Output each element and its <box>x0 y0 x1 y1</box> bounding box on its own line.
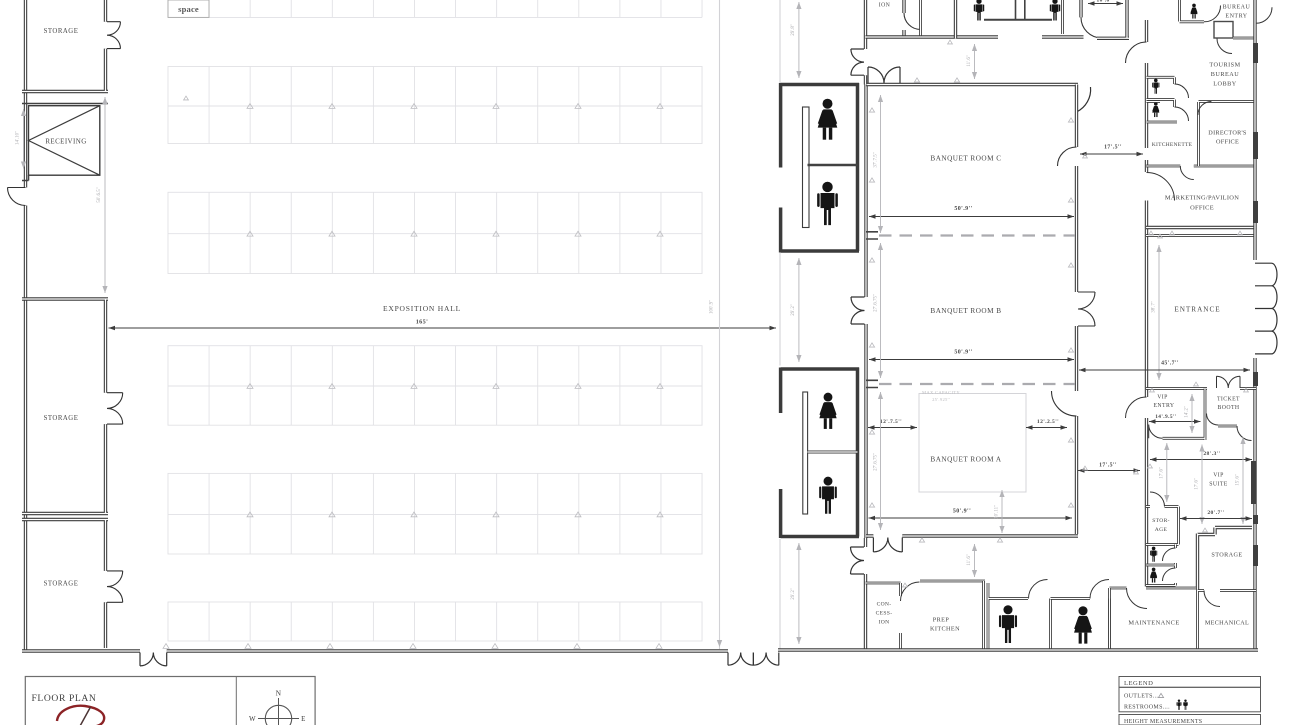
svg-text:OFFICE: OFFICE <box>1216 139 1239 146</box>
svg-text:28'.3'': 28'.3'' <box>1203 451 1220 457</box>
svg-text:50'.9'': 50'.9'' <box>953 509 971 515</box>
svg-text:STORAGE: STORAGE <box>44 28 79 35</box>
svg-text:STORAGE: STORAGE <box>44 415 79 422</box>
svg-text:E: E <box>301 715 306 723</box>
svg-text:STOR-: STOR- <box>1152 518 1170 524</box>
svg-text:OFFICE: OFFICE <box>1190 205 1214 212</box>
svg-text:W: W <box>249 715 256 723</box>
svg-text:PREP: PREP <box>933 617 950 624</box>
svg-text:MAX CAPACITY: MAX CAPACITY <box>922 390 960 395</box>
svg-text:KITCHEN: KITCHEN <box>930 626 960 633</box>
svg-text:165': 165' <box>416 319 429 326</box>
svg-text:EXPOSITION HALL: EXPOSITION HALL <box>383 304 461 313</box>
svg-text:AGE: AGE <box>1155 527 1168 533</box>
svg-text:STORAGE: STORAGE <box>1211 552 1242 559</box>
svg-text:BUREAU: BUREAU <box>1223 5 1251 11</box>
svg-text:45'.7'': 45'.7'' <box>1161 361 1179 367</box>
svg-text:17'.5'': 17'.5'' <box>1099 463 1117 469</box>
svg-text:ENTRY: ENTRY <box>1153 403 1174 409</box>
svg-text:17'.6'': 17'.6'' <box>1159 467 1164 479</box>
svg-text:38'.7'': 38'.7'' <box>1152 301 1157 313</box>
svg-text:FLOOR PLAN: FLOOR PLAN <box>32 693 97 704</box>
svg-text:ION: ION <box>879 620 890 626</box>
svg-text:CESS-: CESS- <box>876 611 893 617</box>
svg-text:100'.9'': 100'.9'' <box>710 300 715 314</box>
svg-text:STORAGE: STORAGE <box>44 581 79 588</box>
svg-text:BANQUET ROOM B: BANQUET ROOM B <box>930 307 1001 315</box>
svg-text:20'.7'': 20'.7'' <box>1207 510 1224 516</box>
svg-text:50'.6.5'': 50'.6.5'' <box>97 187 102 202</box>
svg-text:29'.2'': 29'.2'' <box>791 304 796 316</box>
svg-text:LEGEND: LEGEND <box>1124 680 1153 687</box>
svg-text:KITCHENETTE: KITCHENETTE <box>1152 142 1193 148</box>
svg-text:LOBBY: LOBBY <box>1213 81 1237 88</box>
svg-text:29'.2'': 29'.2'' <box>791 588 796 600</box>
svg-text:HEIGHT MEASUREMENTS: HEIGHT MEASUREMENTS <box>1124 719 1202 725</box>
svg-text:BANQUET ROOM C: BANQUET ROOM C <box>930 155 1001 163</box>
svg-text:50'.9'': 50'.9'' <box>954 350 972 356</box>
svg-text:BUREAU: BUREAU <box>1211 71 1239 78</box>
svg-text:OUTLETS....: OUTLETS.... <box>1124 694 1160 700</box>
svg-text:50'.9'': 50'.9'' <box>954 206 972 212</box>
svg-text:BANQUET ROOM A: BANQUET ROOM A <box>930 456 1001 464</box>
svg-text:N: N <box>276 689 282 698</box>
svg-text:BOOTH: BOOTH <box>1218 405 1240 411</box>
svg-text:SUITE: SUITE <box>1209 482 1227 488</box>
svg-text:11'.6'': 11'.6'' <box>967 554 972 565</box>
svg-text:15'.6'': 15'.6'' <box>1236 474 1241 486</box>
svg-text:DIRECTOR'S: DIRECTOR'S <box>1208 130 1247 137</box>
svg-text:17'.6'': 17'.6'' <box>1195 478 1200 490</box>
svg-text:14'.2'': 14'.2'' <box>1185 406 1190 418</box>
svg-text:27'.6.75'': 27'.6.75'' <box>874 453 879 471</box>
svg-text:TICKET: TICKET <box>1217 397 1240 403</box>
svg-text:VIP: VIP <box>1213 473 1224 479</box>
svg-text:17'.5'': 17'.5'' <box>1104 145 1122 151</box>
svg-text:RESTROOMS....: RESTROOMS.... <box>1124 705 1170 711</box>
svg-text:29'.8'': 29'.8'' <box>791 24 796 36</box>
svg-text:25'.925'': 25'.925'' <box>932 397 950 402</box>
svg-text:TOURISM: TOURISM <box>1209 62 1240 69</box>
svg-text:CON-: CON- <box>877 602 892 608</box>
svg-text:10'.0'': 10'.0'' <box>1096 0 1113 4</box>
svg-text:10'.11'': 10'.11'' <box>995 505 1000 519</box>
svg-text:ENTRANCE: ENTRANCE <box>1174 306 1220 314</box>
svg-text:VIP: VIP <box>1157 395 1168 401</box>
svg-text:space: space <box>178 4 199 14</box>
svg-text:MARKETING/PAVILION: MARKETING/PAVILION <box>1165 195 1239 202</box>
svg-text:12'.2.5'': 12'.2.5'' <box>1037 419 1059 425</box>
svg-text:11'.6'': 11'.6'' <box>967 55 972 66</box>
svg-text:12'.7.5'': 12'.7.5'' <box>880 419 902 425</box>
svg-text:ENTRY: ENTRY <box>1225 14 1247 20</box>
svg-text:37'.7.5'': 37'.7.5'' <box>874 152 879 167</box>
svg-text:MECHANICAL: MECHANICAL <box>1205 620 1249 627</box>
svg-text:ION: ION <box>879 3 891 9</box>
svg-text:14'.10'': 14'.10'' <box>16 131 21 145</box>
svg-text:14'.9.5'': 14'.9.5'' <box>1155 414 1177 420</box>
svg-text:MAINTENANCE: MAINTENANCE <box>1128 620 1179 627</box>
svg-text:27'.6.75'': 27'.6.75'' <box>874 294 879 312</box>
svg-text:RECEIVING: RECEIVING <box>45 138 86 146</box>
